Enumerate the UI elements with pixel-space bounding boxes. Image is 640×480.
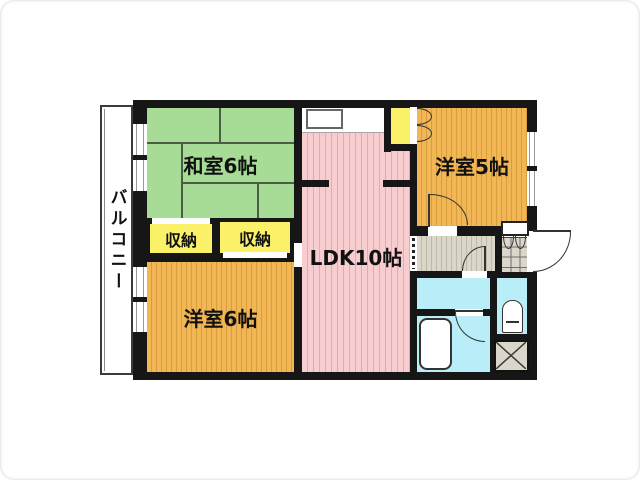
hallway [417, 236, 501, 271]
pipe-space-x-icon [496, 342, 526, 369]
wall-center-vertical [294, 100, 302, 380]
washroom-door-opening [462, 271, 487, 278]
wall-top [133, 100, 537, 108]
window-washitsu [133, 124, 147, 191]
balcony-label: バルコニー [104, 150, 130, 330]
shoe-cabinet [501, 221, 529, 236]
wall-washroom-bottom [410, 309, 455, 316]
window-youshitsu5 [527, 132, 537, 206]
youshitsu5-label: 洋室5帖 [417, 152, 527, 179]
bathtub [419, 318, 452, 370]
wall-youshitsu5-left [410, 151, 417, 236]
closet-door-opening [410, 107, 417, 144]
storage-right-door-gap [223, 252, 287, 258]
wall-water-left [410, 271, 417, 380]
youshitsu6-label: 洋室6帖 [147, 304, 294, 331]
washitsu-label: 和室6帖 [147, 151, 294, 178]
youshitsu5-door-opening [428, 226, 457, 236]
washroom [417, 278, 490, 309]
ldk-hall-sliding-door [412, 238, 415, 269]
closet-youshitsu5 [391, 107, 410, 144]
kitchen-partition-stub-right [383, 180, 410, 187]
pipe-space [494, 340, 529, 372]
kitchen-partition-stub-left [302, 180, 329, 187]
storage-right-label: 収納 [220, 226, 290, 249]
wall-bottom [133, 372, 537, 380]
front-door-arc [533, 232, 571, 272]
toilet-bowl [502, 300, 523, 333]
tatami-line [257, 182, 259, 218]
doorway-center-wall [294, 243, 302, 267]
wall-toilet-top [497, 272, 527, 278]
tatami-line [219, 107, 221, 142]
wall-under-closet [384, 144, 417, 151]
window-youshitsu6 [133, 267, 147, 332]
toilet-seat-line [506, 321, 519, 323]
tatami-line [181, 182, 294, 184]
ldk-label: LDK10帖 [302, 243, 410, 270]
tatami-line [147, 142, 294, 144]
storage-left-label: 収納 [150, 227, 212, 250]
floor-plan: バルコニー [0, 0, 640, 480]
kitchen-counter [306, 109, 343, 129]
storage-left-door-gap [152, 218, 210, 224]
